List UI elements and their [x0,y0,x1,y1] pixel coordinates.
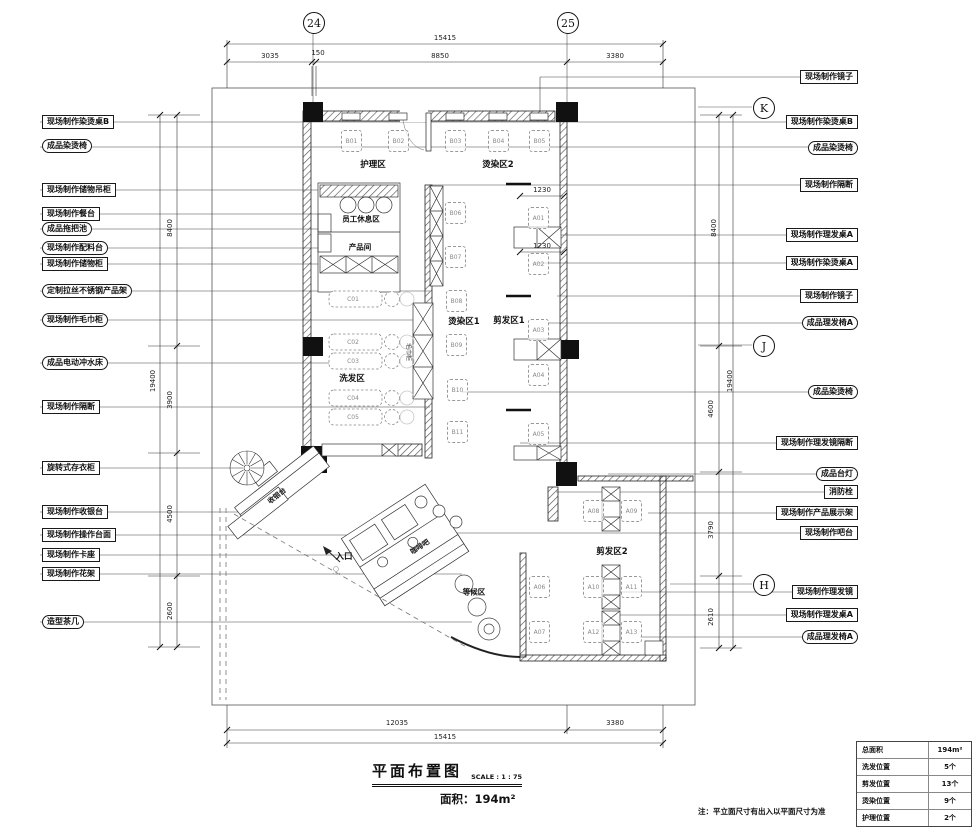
grid-bubble-k: K [753,97,775,119]
seat-a12: A12 [583,621,604,643]
callout-ingredient-counter: 现场制作配料台 [42,241,108,255]
zone-staff: 员工休息区 [342,214,380,225]
table-cell-key: 护理位置 [857,810,929,826]
dim-top-seg1: 3035 [261,52,279,60]
grid-bubble-j: J [753,335,775,357]
dim-bottom-seg2: 3380 [606,719,624,727]
staff-room [318,183,400,292]
callout-storage-cabinet: 现场制作储物柜 [42,257,108,271]
seat-a07: A07 [529,621,550,643]
table-cell-value: 9个 [929,793,971,809]
seat-a05: A05 [528,423,549,445]
drawing-note: 注：平立面尺寸有出入以平面尺寸为准 [698,806,826,817]
zone-towel-cabinet: 毛巾柜 [405,343,414,361]
seat-a09: A09 [621,500,642,522]
seat-a13: A13 [621,621,642,643]
callout-barber-table-a: 现场制作理发桌A [786,228,858,242]
zone-cut1: 剪发区1 [493,314,524,326]
dim-left-seg1: 8400 [166,219,174,237]
callout-flower-rack: 现场制作花架 [42,567,100,581]
seat-b03: B03 [445,130,466,152]
callout-barber-chair-a-2: 成品理发椅A [802,630,858,644]
seat-a02: A02 [528,253,549,275]
seat-b09: B09 [446,334,467,356]
dim-inner-2: 1230 [533,242,551,250]
seat-b07: B07 [445,246,466,268]
seat-b02: B02 [388,130,409,152]
callout-worktop: 现场制作操作台面 [42,528,116,542]
table-cell-key: 烫染位置 [857,793,929,809]
dim-top-total: 15415 [434,34,456,42]
grid-bubble-25: 25 [557,12,579,34]
seat-b08: B08 [446,290,467,312]
callout-cashier-counter: 现场制作收银台 [42,505,108,519]
callout-mirror-top: 现场制作镜子 [800,70,858,84]
seat-b10: B10 [447,379,468,401]
grid-bubble-24: 24 [303,12,325,34]
seat-a04: A04 [528,364,549,386]
dim-right-seg1: 8400 [710,219,718,237]
callout-barber-chair-a: 成品理发椅A [802,316,858,330]
callout-fire-hydrant: 消防栓 [824,485,858,499]
cashier-counter [225,434,329,539]
zone-wash: 洗发区 [339,372,365,384]
grid-bubble-h: H [753,574,775,596]
table-cell-key: 洗发位置 [857,759,929,775]
callout-stainless-product-rack: 定制拉丝不锈钢产品架 [42,284,132,298]
seat-c01: C01 [340,294,366,304]
callout-dye-perm-table-a: 现场制作染烫桌A [786,256,858,270]
dim-left-seg4: 2600 [166,602,174,620]
callout-partition-right: 现场制作隔断 [800,178,858,192]
callout-mirror-mid: 现场制作镜子 [800,289,858,303]
callout-dye-perm-table-b-right: 现场制作染烫桌B [786,115,858,129]
callout-product-display-rack: 现场制作产品展示架 [776,506,858,520]
seat-a11: A11 [621,576,642,598]
zone-cut2: 剪发区2 [596,545,627,557]
waiting-seats [455,575,500,640]
callout-bar-counter: 现场制作吧台 [800,526,858,540]
seat-a08: A08 [583,500,604,522]
seat-a03: A03 [528,319,549,341]
callout-barber-mirror-partition: 现场制作理发镜隔断 [776,436,858,450]
seat-c02: C02 [340,337,366,347]
dim-right-seg3: 3790 [707,521,715,539]
seat-b06: B06 [445,202,466,224]
seat-b01: B01 [341,130,362,152]
seat-b04: B04 [488,130,509,152]
zone-nursing: 护理区 [360,158,386,170]
callout-electric-wash-bed: 成品电动冲水床 [42,356,108,370]
table-cell-value: 5个 [929,759,971,775]
dim-inner-1: 1230 [533,186,551,194]
zone-product: 产品间 [349,242,372,253]
seat-c05: C05 [340,412,366,422]
zone-waiting: 等候区 [463,587,486,598]
seat-b05: B05 [529,130,550,152]
dim-right-seg4: 2610 [707,608,715,626]
zone-perm2: 烫染区2 [482,158,513,170]
callout-barber-table-a-2: 现场制作理发桌A [786,608,858,622]
dim-top-seg2: 150 [311,49,324,57]
callout-dye-perm-chair-2: 成品染烫椅 [808,385,858,399]
drawing-scale: SCALE : 1 : 75 [471,773,522,781]
rotating-wardrobe [230,451,264,485]
table-cell-value: 194m² [929,742,971,758]
callout-hanging-storage: 现场制作储物吊柜 [42,183,116,197]
summary-table: 总面积 194m² 洗发位置 5个 剪发位置 13个 烫染位置 9个 护理位置 … [856,741,972,827]
callout-mop-sink: 成品拖把池 [42,222,92,236]
seat-a10: A10 [583,576,604,598]
zone-entrance: 入口 [335,550,352,562]
callout-tea-table: 造型茶几 [42,615,84,629]
callout-table-lamp: 成品台灯 [816,467,858,481]
dim-top-seg3: 8850 [431,52,449,60]
table-cell-key: 剪发位置 [857,776,929,792]
callout-partition-left: 现场制作隔断 [42,400,100,414]
table-row: 总面积 194m² [857,742,971,759]
seat-c04: C04 [340,393,366,403]
floor-plan-sheet: 24 25 K J H 15415 3035 150 8850 3380 120… [0,0,980,828]
callout-dining-counter: 现场制作餐台 [42,207,100,221]
area-label: 面积：194m² [440,791,516,807]
dim-left-seg3: 4500 [166,505,174,523]
table-row: 烫染位置 9个 [857,793,971,810]
storefront-wall [451,637,520,657]
callout-towel-cabinet: 现场制作毛巾柜 [42,313,108,327]
page-title: 平面布置图 [372,760,462,781]
dim-left-seg2: 3900 [166,391,174,409]
table-cell-value: 13个 [929,776,971,792]
dim-left-total: 19400 [149,370,157,392]
dim-top-seg4: 3380 [606,52,624,60]
table-cell-key: 总面积 [857,742,929,758]
callout-barber-mirror: 现场制作理发镜 [792,585,858,599]
seat-a01: A01 [528,207,549,229]
coffee-bar [341,484,468,606]
callout-dye-perm-chair-right: 成品染烫椅 [808,141,858,155]
callout-dye-perm-chair: 成品染烫椅 [42,139,92,153]
dim-bottom-total: 15415 [434,733,456,741]
table-row: 洗发位置 5个 [857,759,971,776]
table-cell-value: 2个 [929,810,971,826]
dim-bottom-seg1: 12035 [386,719,408,727]
table-row: 护理位置 2个 [857,810,971,826]
seat-c03: C03 [340,356,366,366]
seat-a06: A06 [529,576,550,598]
callout-dye-perm-table-b: 现场制作染烫桌B [42,115,114,129]
dim-right-total: 19400 [726,370,734,392]
dim-right-seg2: 4600 [707,400,715,418]
table-row: 剪发位置 13个 [857,776,971,793]
zone-perm1: 烫染区1 [448,315,479,327]
product-counter [322,444,398,456]
callout-booth-seat: 现场制作卡座 [42,548,100,562]
drawing-title-block: 平面布置图 SCALE : 1 : 75 [372,760,522,787]
callout-rotating-wardrobe: 旋转式存衣柜 [42,461,100,475]
seat-b11: B11 [447,421,468,443]
